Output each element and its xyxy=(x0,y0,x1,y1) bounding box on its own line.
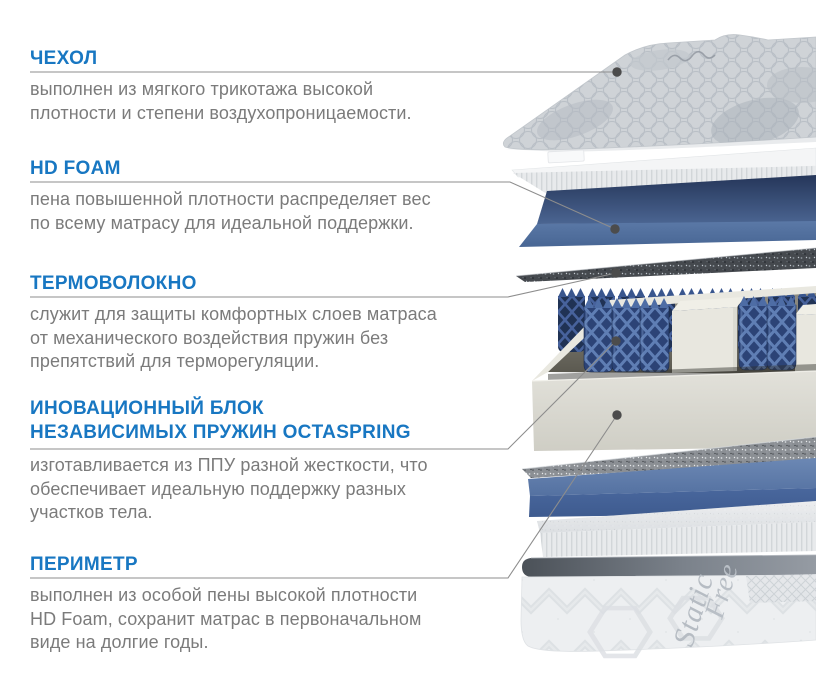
mattress-infographic: Static Free ЧЕХОЛ выполнен из мягкого тр… xyxy=(0,0,816,700)
section-body: изготавливается из ППУ разной жесткости,… xyxy=(30,454,428,525)
section-heading: HD FOAM xyxy=(30,157,431,181)
pointer-dot-hd-foam xyxy=(610,224,619,233)
section-heading: ИНОВАЦИОННЫЙ БЛОК xyxy=(30,397,428,421)
section-heading: ПЕРИМЕТР xyxy=(30,553,422,577)
thermal-fiber-layer-top xyxy=(516,248,816,282)
section-perimeter: ПЕРИМЕТР выполнен из особой пены высокой… xyxy=(30,553,422,655)
spring-block-layer xyxy=(532,286,816,451)
body-line: изготавливается из ППУ разной жесткости,… xyxy=(30,454,428,478)
body-line: служит для защиты комфортных слоев матра… xyxy=(30,303,437,327)
body-line: от механического воздействия пружин без xyxy=(30,327,437,351)
base-perimeter-layer: Static Free xyxy=(521,555,816,656)
pointer-dot-thermal-fiber xyxy=(611,268,620,277)
body-line: по всему матрасу для идеальной поддержки… xyxy=(30,212,431,236)
body-line: препятствий для терморегуляции. xyxy=(30,350,437,374)
section-body: выполнен из особой пены высокой плотност… xyxy=(30,584,422,655)
base-top-band xyxy=(522,555,816,577)
body-line: участков тела. xyxy=(30,501,428,525)
body-line: обеспечивает идеальную поддержку разных xyxy=(30,478,428,502)
body-line: выполнен из мягкого трикотажа высокой xyxy=(30,78,412,102)
pointer-dot-perimeter xyxy=(612,410,621,419)
base-ornate-patch xyxy=(746,574,816,603)
pointer-dot-spring-block xyxy=(611,336,620,345)
section-heading: ТЕРМОВОЛОКНО xyxy=(30,272,437,296)
fabric-tag xyxy=(548,150,585,163)
body-line: виде на долгие годы. xyxy=(30,631,422,655)
section-spring-block: ИНОВАЦИОННЫЙ БЛОК НЕЗАВИСИМЫХ ПРУЖИН OCT… xyxy=(30,397,428,525)
body-line: выполнен из особой пены высокой плотност… xyxy=(30,584,422,608)
section-heading-line2: НЕЗАВИСИМЫХ ПРУЖИН OCTASPRING xyxy=(30,421,428,445)
body-line: плотности и степени воздухопроницаемости… xyxy=(30,102,412,126)
section-cover: ЧЕХОЛ выполнен из мягкого трикотажа высо… xyxy=(30,47,412,125)
section-body: служит для защиты комфортных слоев матра… xyxy=(30,303,437,374)
section-body: пена повышенной плотности распределяет в… xyxy=(30,188,431,235)
body-line: HD Foam, сохранит матрас в первоначально… xyxy=(30,608,422,632)
section-heading: ЧЕХОЛ xyxy=(30,47,412,71)
section-hd-foam: HD FOAM пена повышенной плотности распре… xyxy=(30,157,431,235)
section-thermal-fiber: ТЕРМОВОЛОКНО служит для защиты комфортны… xyxy=(30,272,437,374)
pointer-dot-cover xyxy=(612,67,621,76)
section-body: выполнен из мягкого трикотажа высокой пл… xyxy=(30,78,412,125)
body-line: пена повышенной плотности распределяет в… xyxy=(30,188,431,212)
